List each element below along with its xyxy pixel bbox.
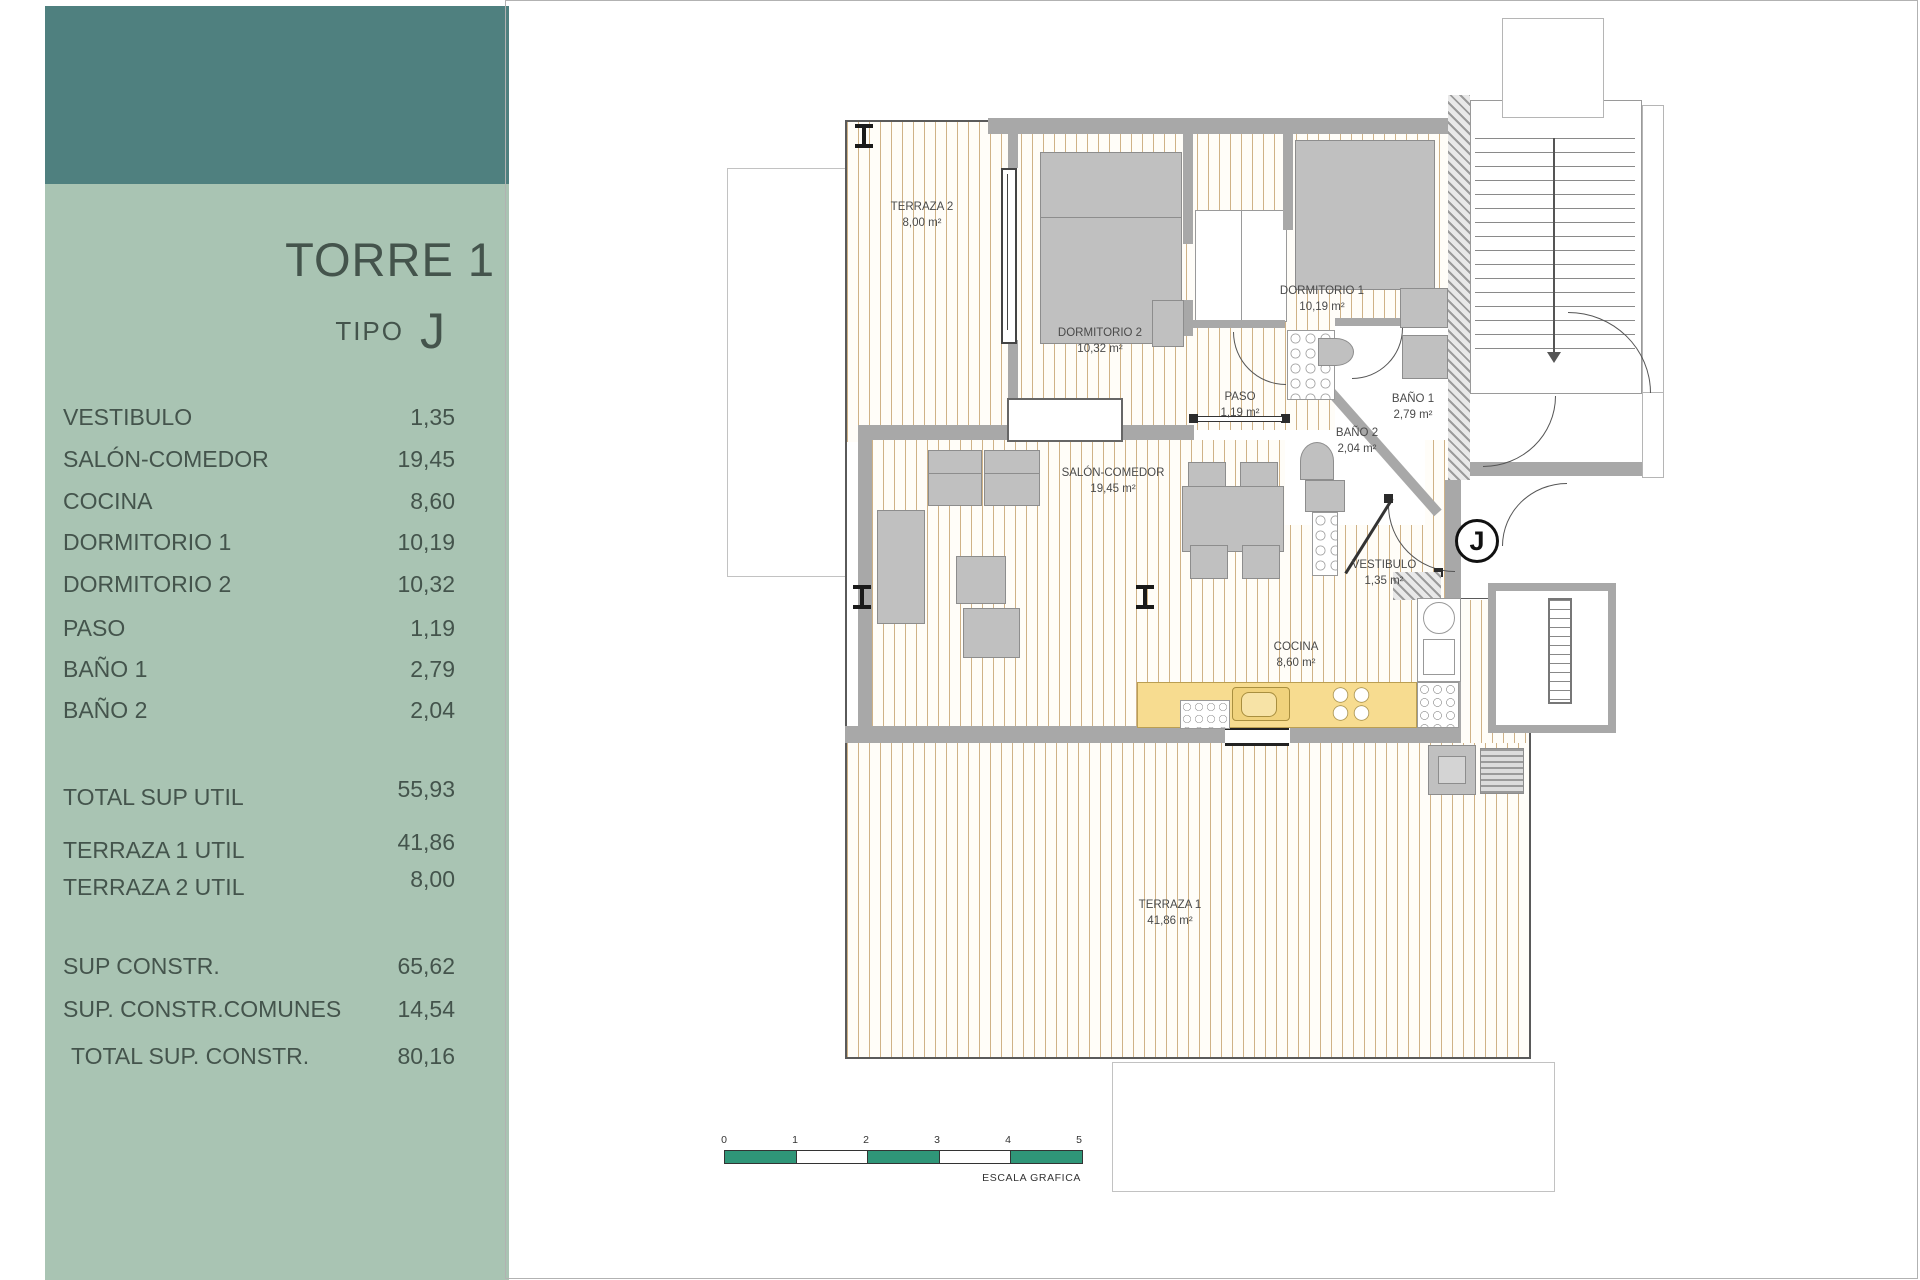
window-midline [1007, 174, 1008, 330]
scale-segment [725, 1151, 797, 1163]
room-area: 10,32 m² [1058, 342, 1142, 358]
sofa-line [929, 473, 981, 474]
fridge [1417, 598, 1461, 682]
room-area: 8,00 m² [891, 216, 954, 232]
closet [1195, 210, 1287, 322]
row-label: PASO [63, 615, 125, 642]
area-row-bano2: BAÑO 22,04 [63, 697, 455, 727]
wall-living-top-right [1118, 425, 1194, 440]
row-label: BAÑO 1 [63, 656, 147, 683]
room-area: 41,86 m² [1139, 914, 1202, 930]
info-sidebar: TORRE 1 TIPOJ VESTIBULO1,35 SALÓN-COMEDO… [45, 6, 509, 1280]
room-name: BAÑO 2 [1336, 426, 1378, 442]
terraza1-util-row: TERRAZA 1 UTIL41,86 [63, 837, 455, 867]
row-value: 1,35 [410, 404, 455, 431]
adjacent-unit-outline-left [727, 168, 847, 577]
door-post [1189, 414, 1198, 423]
room-area: 19,45 m² [1062, 482, 1165, 498]
scale-segment [940, 1151, 1012, 1163]
room-label-dormitorio1: DORMITORIO 110,19 m² [1280, 284, 1364, 315]
window-kitchen [1225, 727, 1289, 746]
unit-badge: J [1455, 519, 1499, 563]
toilet-bano1 [1318, 338, 1354, 366]
closet-divider [1241, 211, 1242, 321]
terrace-edge-left [845, 120, 847, 1058]
scale-segment [868, 1151, 940, 1163]
row-label: DORMITORIO 2 [63, 571, 231, 598]
terraza2-util-row: TERRAZA 2 UTIL8,00 [63, 874, 455, 904]
window-terraza2 [1001, 168, 1017, 344]
row-label: SUP. CONSTR.COMUNES [63, 996, 341, 1023]
washer [1180, 700, 1230, 729]
tipo-label: TIPO [335, 316, 404, 346]
laundry-basin [1438, 756, 1466, 784]
row-value: 10,32 [397, 571, 455, 598]
room-area: 8,60 m² [1274, 656, 1319, 672]
scale-tick: 1 [792, 1134, 798, 1146]
room-name: TERRAZA 2 [891, 200, 954, 216]
row-label: SUP CONSTR. [63, 953, 220, 980]
dining-chair [1242, 545, 1280, 579]
elevator-ladder [1548, 598, 1572, 704]
scale-caption: ESCALA GRAFICA [930, 1172, 1081, 1184]
sideboard [877, 510, 925, 624]
graphic-scale-bar [724, 1150, 1083, 1164]
room-name: SALÓN-COMEDOR [1062, 466, 1165, 482]
laundry-sink [1428, 745, 1476, 795]
row-value: 2,04 [410, 697, 455, 724]
cooktop [1330, 686, 1372, 722]
terraza2-edge-top [845, 120, 1011, 122]
room-area: 1,35 m² [1352, 574, 1417, 590]
scale-tick: 5 [1076, 1134, 1082, 1146]
room-label-terraza2: TERRAZA 28,00 m² [891, 200, 954, 231]
room-label-paso: PASO1,19 m² [1221, 390, 1260, 421]
page-title: TORRE 1 [285, 232, 495, 287]
row-value: 80,16 [397, 1043, 455, 1070]
wall-paso-top [1193, 320, 1285, 328]
room-label-bano1: BAÑO 12,79 m² [1392, 392, 1434, 423]
sidebar-header-band [45, 6, 509, 184]
row-label: TERRAZA 1 UTIL [63, 837, 244, 864]
terraza1-edge-bottom [845, 1057, 1531, 1059]
area-row-vestibulo: VESTIBULO1,35 [63, 404, 455, 434]
shaft-outline-top [1502, 18, 1604, 118]
scale-tick: 0 [721, 1134, 727, 1146]
wall-living-left [858, 440, 872, 728]
row-label: SALÓN-COMEDOR [63, 446, 269, 473]
wall-dorm1-left [1283, 134, 1293, 230]
landing-outline-right [1642, 392, 1664, 478]
dining-table [1182, 486, 1284, 552]
row-label: TOTAL SUP. CONSTR. [63, 1043, 309, 1070]
area-row-dorm2: DORMITORIO 210,32 [63, 571, 455, 601]
unit-type: TIPOJ [335, 302, 445, 360]
row-value: 10,19 [397, 529, 455, 556]
sofa-seat [928, 450, 982, 506]
fridge-circle [1423, 602, 1455, 634]
row-value: 8,00 [410, 866, 455, 893]
dishwasher [1417, 682, 1459, 728]
terraza2-floor [847, 122, 1010, 442]
tipo-value: J [420, 303, 445, 359]
room-label-terraza1: TERRAZA 141,86 m² [1139, 898, 1202, 929]
room-area: 2,79 m² [1392, 408, 1434, 424]
sink-basin [1241, 692, 1277, 717]
row-value: 1,19 [410, 615, 455, 642]
area-row-dorm1: DORMITORIO 110,19 [63, 529, 455, 559]
shower-bano2 [1312, 512, 1338, 576]
balcony-outline-right [1642, 105, 1664, 394]
room-name: DORMITORIO 2 [1058, 326, 1142, 342]
room-label-bano2: BAÑO 22,04 m² [1336, 426, 1378, 457]
wall-bottom-right [1290, 726, 1448, 743]
room-label-cocina: COCINA8,60 m² [1274, 640, 1319, 671]
row-label: DORMITORIO 1 [63, 529, 231, 556]
ibeam-column [855, 124, 873, 148]
row-value: 65,62 [397, 953, 455, 980]
sofa-seat [984, 450, 1040, 506]
coffee-table [956, 556, 1006, 604]
total-util-row: TOTAL SUP UTIL55,93 [63, 784, 455, 814]
room-name: COCINA [1274, 640, 1319, 656]
adjacent-terrace-outline-bottom [1112, 1062, 1555, 1192]
scale-segment [797, 1151, 869, 1163]
room-area: 10,19 m² [1280, 300, 1364, 316]
toilet-bano2 [1300, 442, 1334, 480]
scale-segment [1011, 1151, 1082, 1163]
area-row-salon: SALÓN-COMEDOR19,45 [63, 446, 455, 476]
wall-bottom-left [845, 726, 1225, 743]
wall-living-top-left [858, 425, 1008, 440]
room-name: BAÑO 1 [1392, 392, 1434, 408]
sup-constr-comunes-row: SUP. CONSTR.COMUNES14,54 [63, 996, 455, 1026]
sliding-door-living [1007, 398, 1123, 442]
wall-top [988, 118, 1450, 134]
row-value: 2,79 [410, 656, 455, 683]
grate [1480, 748, 1524, 794]
armchair [963, 608, 1020, 658]
basin-bano2 [1305, 480, 1345, 512]
wardrobe [1400, 288, 1448, 328]
room-name: DORMITORIO 1 [1280, 284, 1364, 300]
row-label: TOTAL SUP UTIL [63, 784, 244, 811]
ibeam-column [853, 585, 871, 609]
area-row-cocina: COCINA8,60 [63, 488, 455, 518]
row-label: COCINA [63, 488, 152, 515]
row-value: 8,60 [410, 488, 455, 515]
kitchen-sink [1232, 687, 1290, 721]
area-row-paso: PASO1,19 [63, 615, 455, 645]
dining-chair [1190, 545, 1228, 579]
nightstand [1152, 300, 1184, 347]
total-constr-row: TOTAL SUP. CONSTR.80,16 [63, 1043, 455, 1073]
wall-dorm2-right-low [1183, 300, 1193, 336]
scale-tick: 3 [934, 1134, 940, 1146]
room-name: TERRAZA 1 [1139, 898, 1202, 914]
room-label-dormitorio2: DORMITORIO 210,32 m² [1058, 326, 1142, 357]
room-label-salon: SALÓN-COMEDOR19,45 m² [1062, 466, 1165, 497]
sup-constr-row: SUP CONSTR.65,62 [63, 953, 455, 983]
row-label: VESTIBULO [63, 404, 192, 431]
wall-communal-hatched [1448, 95, 1470, 480]
row-label: TERRAZA 2 UTIL [63, 874, 244, 901]
wall-dorm2-right [1183, 134, 1193, 244]
row-label: BAÑO 2 [63, 697, 147, 724]
wall-window-stub-top [1008, 134, 1018, 168]
bed-pillow-line [1041, 217, 1181, 218]
stair-treads [1475, 138, 1635, 350]
room-area: 2,04 m² [1336, 442, 1378, 458]
room-area: 1,19 m² [1221, 406, 1260, 422]
row-value: 19,45 [397, 446, 455, 473]
stair-centerline [1553, 138, 1555, 356]
stair-direction-arrow [1547, 352, 1561, 363]
room-label-vestibulo: VESTIBULO1,35 m² [1352, 558, 1417, 589]
room-name: VESTIBULO [1352, 558, 1417, 574]
door-post [1384, 494, 1393, 503]
scale-tick: 4 [1005, 1134, 1011, 1146]
fridge-box [1423, 639, 1455, 675]
room-name: PASO [1221, 390, 1260, 406]
area-row-bano1: BAÑO 12,79 [63, 656, 455, 686]
row-value: 55,93 [397, 776, 455, 803]
bano1-sink [1402, 335, 1448, 379]
row-value: 41,86 [397, 829, 455, 856]
scale-tick: 2 [863, 1134, 869, 1146]
sofa-line [985, 473, 1039, 474]
ibeam-column [1136, 585, 1154, 609]
bed-dormitorio1 [1295, 140, 1435, 290]
door-post [1281, 414, 1290, 423]
row-value: 14,54 [397, 996, 455, 1023]
